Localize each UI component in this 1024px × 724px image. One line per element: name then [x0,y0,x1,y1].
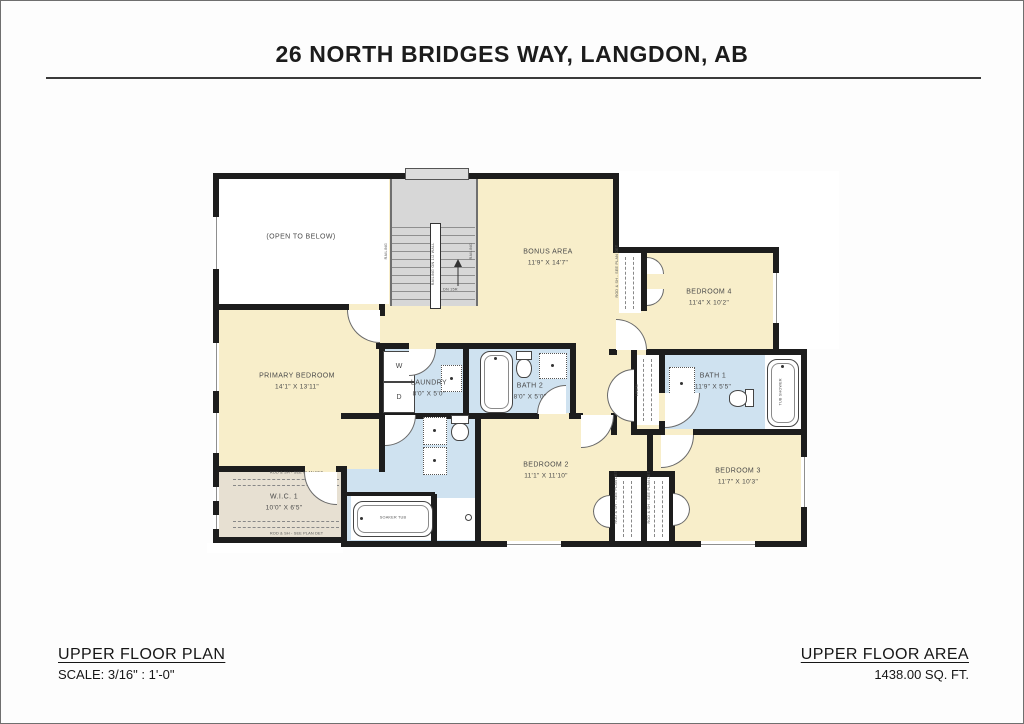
sink-drain [433,429,436,432]
room-label-wic-1: W.I.C. 1 10'0" X 6'5" [266,493,303,514]
vanity-sink-ensuite [423,447,447,475]
tub-shower-label: TUB SHOWER [779,377,785,407]
window-marker [801,457,807,507]
stairs-treads [392,227,430,305]
window-marker [213,217,219,269]
wall-segment [613,247,779,253]
room-label-bedroom-4: BEDROOM 4 11'4" X 10'2" [686,288,732,309]
wall-segment [463,343,469,413]
closet-rod-dash [623,481,624,537]
room-label-primary-bedroom: PRIMARY BEDROOM 14'1" X 13'11" [259,372,335,393]
wall-segment [631,429,659,435]
toilet-bowl [516,359,532,378]
closet-rod-dash [643,359,644,421]
plan-title-block: UPPER FLOOR PLAN SCALE: 3/16" : 1'-0" [58,646,225,682]
room-label-bath-2: BATH 2 8'0" X 5'0" [514,382,547,403]
wall-segment [641,477,647,541]
window-marker [773,273,779,323]
floor-plan-drawing: RAILING RAILING RAILING ON 1/2 WALL DN 1… [1,1,1023,723]
closet-rod-note: ROD & SH - SEE PLAN DET [615,268,620,297]
toilet-bowl [729,390,747,407]
wall-segment [570,343,576,413]
linen-label: LINEN [635,374,640,406]
sink-drain [450,377,453,380]
closet-rod-note: ROD & SH - SEE PLAN DET [614,494,619,523]
room-label-bath-1: BATH 1 11'9" X 5'5" [695,372,731,393]
exterior-mask [207,543,343,553]
stairs-down-arrow-icon [453,259,463,287]
sink-drain [433,459,436,462]
plan-title: UPPER FLOOR PLAN [58,646,225,664]
wall-segment [213,304,349,310]
window-marker [701,541,755,547]
closet-rod-dash [633,257,634,309]
wall-segment [475,413,481,547]
closet-rod-note: ROD & SH - SEE PLAN DET [647,494,652,523]
washer-label: W [396,363,403,370]
room-label-bonus-area: BONUS AREA 11'9" X 14'7" [523,248,573,269]
railing-half-wall-label: RAILING ON 1/2 WALL [431,247,436,285]
area-value: 1438.00 SQ. FT. [801,667,969,682]
window-marker [507,541,561,547]
closet-rod-dash [651,359,652,421]
plan-scale: SCALE: 3/16" : 1'-0" [58,667,225,682]
window-marker [213,343,219,391]
shower-head-icon [465,514,472,521]
wall-segment [693,429,807,435]
tub-faucet [781,365,784,368]
room-label-laundry: LAUNDRY 8'0" X 5'0" [411,379,447,400]
railing-label: RAILING [469,236,474,265]
stairs-down-label: DN 15R [443,288,458,292]
closet-rod-dash [654,481,655,537]
bathtub-inner [484,355,509,409]
closet-rod-dash [233,527,339,528]
bedroom-4-closet [619,253,641,313]
wall-segment [436,343,576,349]
sink-drain [680,382,683,385]
closet-rod-dash [233,521,339,522]
area-block: UPPER FLOOR AREA 1438.00 SQ. FT. [801,646,969,682]
closet-rod-dash [625,257,626,309]
wall-segment [613,173,619,253]
wall-segment [646,349,807,355]
wall-segment [376,343,409,349]
soaker-tub-label: SOAKER TUB [380,516,406,520]
closet-rod-dash [662,481,663,537]
room-label-bedroom-3: BEDROOM 3 11'7" X 10'3" [715,467,761,488]
bathtub-bath-2 [480,351,513,413]
wall-segment [659,349,665,393]
dryer-label: D [396,394,401,401]
room-label-open-to-below: (OPEN TO BELOW) [266,233,335,244]
toilet-bowl [451,423,469,441]
closet-rod-note: ROD & SH - SEE PLAN DET [270,532,323,536]
room-label-bedroom-2: BEDROOM 2 11'1" X 11'10" [523,461,569,482]
window-marker [213,515,219,529]
window-marker [405,168,469,180]
tub-faucet [494,357,497,360]
wall-segment [347,492,435,496]
exterior-mask [619,171,779,247]
tub-faucet [360,517,363,520]
area-title: UPPER FLOOR AREA [801,646,969,664]
window-marker [213,413,219,453]
exterior-mask [779,171,839,349]
closet-rod-dash [631,481,632,537]
window-marker [213,487,219,501]
stairs-railing [476,179,478,306]
vanity-sink-bath-2 [539,353,567,379]
vanity-sink-ensuite [423,417,447,445]
floor-plan-page: 26 NORTH BRIDGES WAY, LANGDON, AB [0,0,1024,724]
sink-drain [551,364,554,367]
wall-segment [341,466,347,543]
wall-segment [213,537,347,543]
wall-segment [801,349,807,547]
railing-label: RAILING [384,236,389,265]
